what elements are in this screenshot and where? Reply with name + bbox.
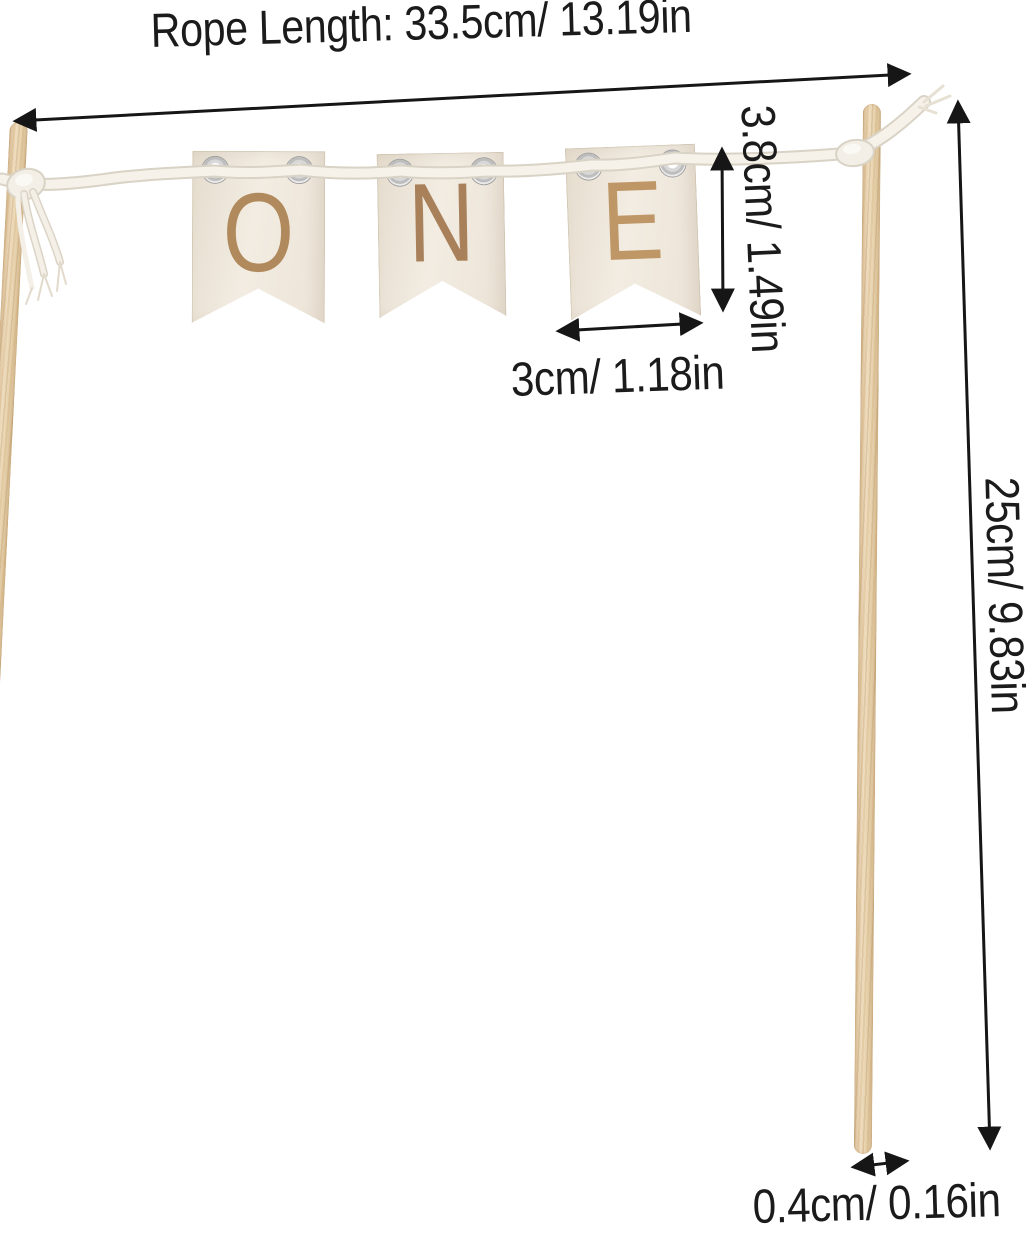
flag-height-arrow [722,150,723,309]
banner-letter-3: E [577,163,688,279]
banner-flag-1: O [192,151,326,323]
left-wooden-stick [0,122,28,1167]
banner-flag-3: E [565,144,701,321]
flag-width-label: 3cm/ 1.18in [510,349,725,407]
banner-letter-2: N [388,166,494,280]
banner-flag-2: N [377,152,507,318]
rope-tassel [18,192,66,304]
stick-length-label: 25cm/ 9.83in [975,476,1032,714]
product-dimension-diagram: O N E [0,0,1034,1237]
flag-width-arrow [559,323,700,331]
flag-height-label: 3.8cm/ 1.49in [731,104,792,354]
banner-letter-1: O [204,177,313,289]
stick-diameter-arrow [854,1161,906,1167]
rope-length-label: Rope Length: 33.5cm/ 13.19in [150,0,692,57]
stick-diameter-label: 0.4cm/ 0.16in [752,1176,1001,1233]
right-wooden-stick [854,104,881,1154]
